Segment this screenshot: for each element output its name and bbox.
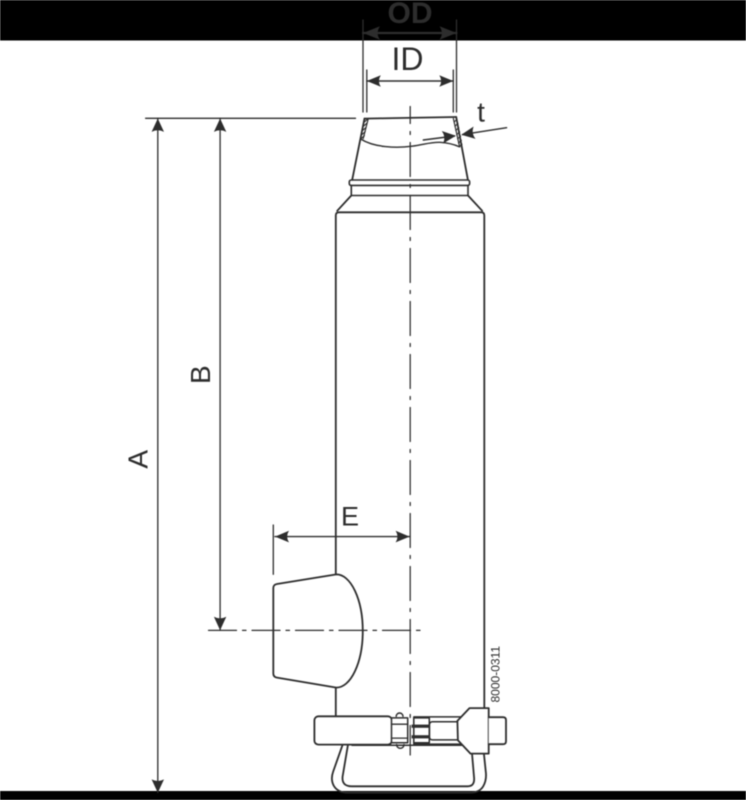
svg-text:OD: OD	[388, 0, 433, 30]
svg-text:B: B	[185, 365, 216, 384]
svg-text:E: E	[341, 502, 359, 532]
svg-text:8000-0311: 8000-0311	[488, 646, 502, 703]
svg-text:ID: ID	[392, 41, 424, 77]
svg-text:t: t	[477, 97, 485, 128]
svg-text:A: A	[123, 450, 154, 469]
